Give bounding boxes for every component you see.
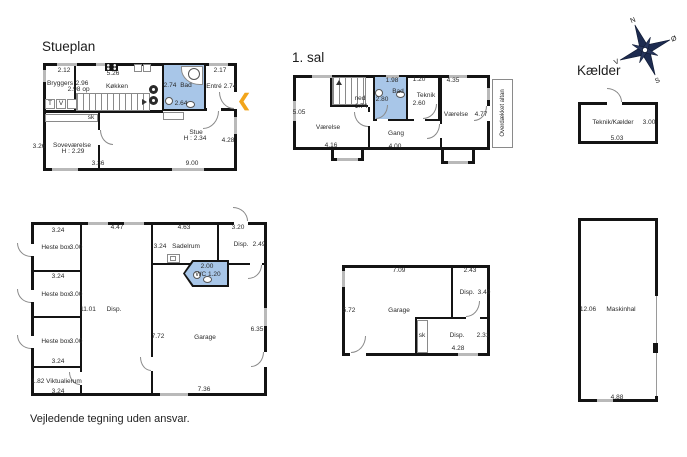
- disclaimer-text: Vejledende tegning uden ansvar.: [30, 413, 190, 425]
- window-marker: [124, 222, 144, 225]
- window-marker: [448, 161, 468, 164]
- dim-label: 3.24: [52, 389, 65, 396]
- room-label: Disp.: [450, 333, 465, 340]
- wall: [440, 75, 442, 150]
- dim-label: 6.35: [251, 327, 264, 334]
- window-marker: [234, 117, 237, 134]
- stairs: [76, 93, 150, 111]
- window-marker: [487, 88, 490, 100]
- appliance-box: [134, 64, 142, 72]
- compass-rose-icon: N Ø S V: [604, 12, 684, 86]
- dim-label: 3.36: [92, 161, 105, 168]
- wall: [451, 265, 453, 318]
- fixture-box: [170, 256, 176, 261]
- room-label: Gang: [388, 131, 404, 138]
- opening-line: [656, 296, 657, 343]
- dim-label: 5.03: [611, 136, 624, 143]
- room-label: Heste box: [41, 292, 70, 299]
- window-marker: [57, 63, 77, 66]
- dim-label: 4.35: [447, 78, 460, 85]
- dim-label: 4.00: [389, 144, 402, 151]
- room-label: Teknik: [417, 93, 435, 100]
- dim-label: 4.88: [611, 395, 624, 402]
- dim-label: 3.00: [70, 245, 83, 252]
- dim-label: 12.06: [580, 307, 596, 314]
- window-marker: [337, 158, 358, 161]
- dim-label: 3.00: [70, 339, 83, 346]
- room-label: Bad: [392, 89, 404, 96]
- door-opening: [466, 317, 480, 319]
- compass-n-label: N: [630, 17, 637, 25]
- room-label: Teknik/Kælder: [592, 120, 633, 127]
- dim-label: 4.63: [178, 225, 191, 232]
- room-label: Disp.: [107, 307, 122, 314]
- appliance-label: V: [59, 101, 63, 108]
- bathtub-icon: [188, 68, 200, 80]
- room-label: WC 1.20: [195, 272, 220, 279]
- wall: [31, 316, 82, 318]
- dim-label: 3.24: [52, 359, 65, 366]
- dim-label: 2.31: [477, 333, 490, 340]
- dim-label: 1.98: [386, 78, 399, 85]
- window-marker: [312, 75, 332, 78]
- door-opening: [414, 119, 425, 121]
- dim-label: 5.26: [107, 71, 120, 78]
- room-label: Bad: [180, 83, 192, 90]
- room-label: Viktualierum: [46, 379, 82, 386]
- dim-label: 2.98: [68, 87, 81, 94]
- dim-label: 2.60: [413, 101, 426, 108]
- dim-label: 2.74: [164, 83, 177, 90]
- window-marker: [209, 63, 228, 66]
- closet-label: sk: [419, 333, 426, 340]
- room-label: Disp.: [234, 242, 249, 249]
- window-marker: [264, 308, 267, 326]
- wall: [653, 343, 658, 353]
- wall: [31, 270, 82, 272]
- window-marker: [458, 353, 478, 356]
- dim-label: 3.00: [643, 120, 656, 127]
- dim-label: 2.80: [376, 97, 389, 104]
- dim-label: 3.00: [70, 292, 83, 299]
- window-marker: [172, 168, 204, 171]
- sink-basin-icon: [149, 85, 158, 94]
- dim-label: 1.82: [32, 379, 45, 386]
- window-marker: [342, 271, 345, 287]
- dim-label: 2.00: [201, 264, 214, 271]
- dim-label: 2.74: [224, 84, 237, 91]
- room-label: Garage: [388, 308, 410, 315]
- dim-label: 4.16: [325, 143, 338, 150]
- dim-label: 3.40: [478, 290, 491, 297]
- dim-label: 3.20: [232, 225, 245, 232]
- room-label: Heste box: [41, 245, 70, 252]
- door-opening: [31, 244, 34, 256]
- dim-label: 2.64: [175, 101, 188, 108]
- dim-label: 5.05: [293, 110, 306, 117]
- room-label: Disp.: [460, 290, 475, 297]
- dim-label: 4.77: [475, 112, 488, 119]
- dim-label: 7.09: [393, 268, 406, 275]
- window-marker: [88, 222, 108, 225]
- door-opening: [264, 352, 267, 367]
- dim-label: 7.36: [198, 387, 211, 394]
- dim-label: 4.47: [111, 225, 124, 232]
- height-label: H : 2.29: [62, 149, 85, 156]
- dim-label: 9.00: [186, 161, 199, 168]
- door-opening: [607, 102, 622, 105]
- door-opening: [31, 290, 34, 302]
- dim-label: 3.24: [52, 274, 65, 281]
- compass-s-label: S: [654, 77, 661, 85]
- dim-label: 11.01: [80, 307, 96, 314]
- door-opening: [31, 336, 34, 348]
- wall: [217, 222, 219, 265]
- room-label: Værelse: [316, 125, 340, 132]
- room-label: Entré: [206, 84, 222, 91]
- compass-v-label: V: [613, 58, 620, 66]
- opening-line: [656, 353, 657, 396]
- door-arc: [17, 289, 31, 303]
- door-arc: [233, 207, 248, 221]
- door-opening: [440, 124, 442, 138]
- door-opening: [368, 112, 370, 126]
- room-label: Værelse: [444, 112, 468, 119]
- door-opening: [377, 119, 388, 121]
- dim-label: 3.24: [154, 244, 167, 251]
- dim-label: 1.74: [355, 104, 368, 111]
- stair-direction-arrow: [336, 80, 342, 85]
- door-arc: [607, 88, 622, 102]
- door-arc: [17, 243, 31, 257]
- window-marker: [43, 70, 46, 82]
- closet-label: sk: [88, 115, 95, 122]
- appliance-label: T: [48, 101, 52, 108]
- sink-basin-icon: [149, 96, 158, 105]
- entrance-arrow-icon: ❮: [237, 92, 251, 109]
- window-marker: [52, 168, 78, 171]
- dim-label: 2.17: [214, 68, 227, 75]
- dim-label: 2.49: [253, 242, 266, 249]
- room-label: Køkken: [106, 84, 128, 91]
- door-opening: [151, 357, 153, 371]
- stair-label: op: [82, 87, 89, 94]
- stair-direction-arrow: [142, 99, 147, 105]
- compass-e-label: Ø: [670, 35, 678, 44]
- plan-title-stueplan: Stueplan: [42, 39, 95, 54]
- balcony-label: Overdækket altan: [500, 89, 506, 136]
- room-label: Sadelrum: [172, 244, 200, 251]
- dim-label: 2.43: [464, 268, 477, 275]
- dim-label: 2.12: [58, 68, 71, 75]
- room-label: Garage: [194, 335, 216, 342]
- door-arc: [17, 335, 31, 349]
- height-label: H : 2.34: [184, 136, 207, 143]
- stair-label: ned: [355, 96, 366, 103]
- sink-icon: [165, 97, 173, 105]
- room-label: Heste box: [41, 339, 70, 346]
- appliance-box: [143, 64, 151, 72]
- dim-label: 5.72: [343, 308, 356, 315]
- furniture: [163, 112, 184, 120]
- dim-label: 3.24: [52, 228, 65, 235]
- dim-label: 1.20: [413, 77, 426, 84]
- door-opening: [350, 353, 366, 356]
- dim-label: 4.28: [222, 138, 235, 145]
- plan-title-1sal: 1. sal: [292, 50, 324, 65]
- dim-label: 7.72: [152, 334, 165, 341]
- floor-plan-drawing: Stueplan 1. sal Kælder Vejledende tegnin…: [0, 0, 687, 457]
- dim-label: 3.26: [33, 144, 46, 151]
- wall: [31, 366, 82, 368]
- room-label: Maskinhal: [606, 307, 635, 314]
- dim-label: 4.28: [452, 346, 465, 353]
- window-marker: [160, 393, 188, 396]
